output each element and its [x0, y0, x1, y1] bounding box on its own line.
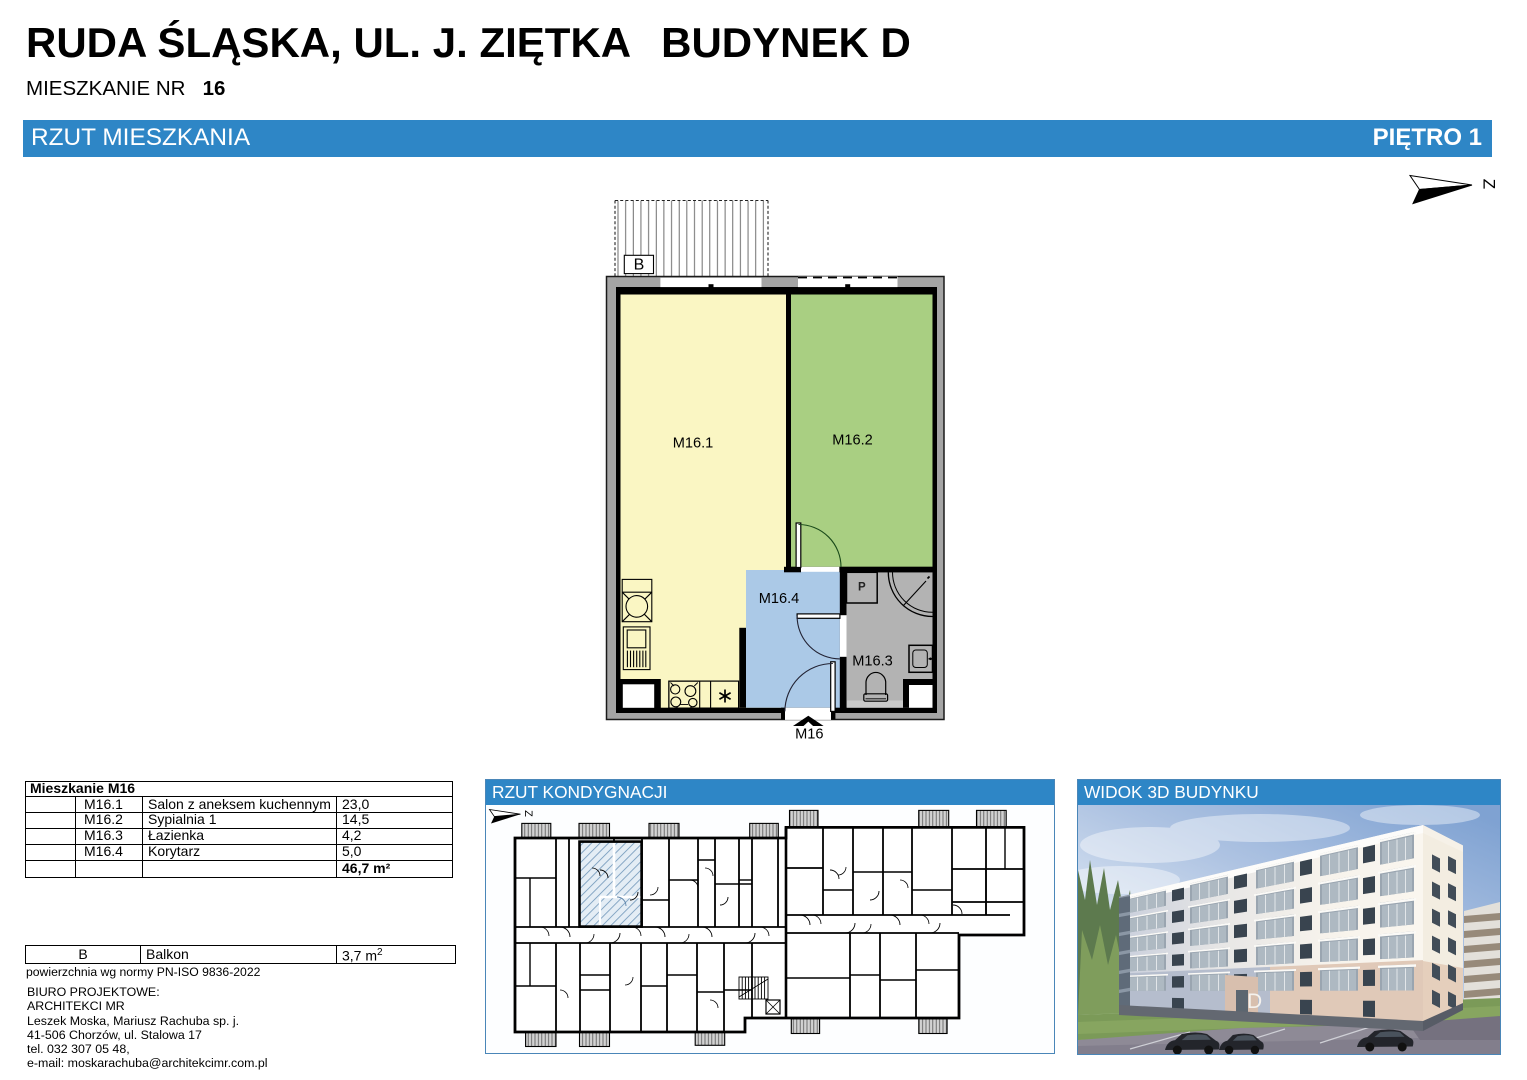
- svg-text:M16.1: M16.1: [673, 436, 714, 452]
- svg-text:M16.2: M16.2: [832, 433, 873, 449]
- svg-text:B: B: [634, 257, 645, 274]
- svg-text:P: P: [858, 582, 866, 594]
- svg-text:Z: Z: [522, 810, 534, 817]
- svg-text:D: D: [1247, 990, 1262, 1013]
- svg-text:M16.3: M16.3: [852, 654, 893, 670]
- svg-text:M16: M16: [795, 727, 823, 743]
- svg-text:M16.4: M16.4: [759, 591, 800, 607]
- svg-text:Z: Z: [1480, 179, 1499, 189]
